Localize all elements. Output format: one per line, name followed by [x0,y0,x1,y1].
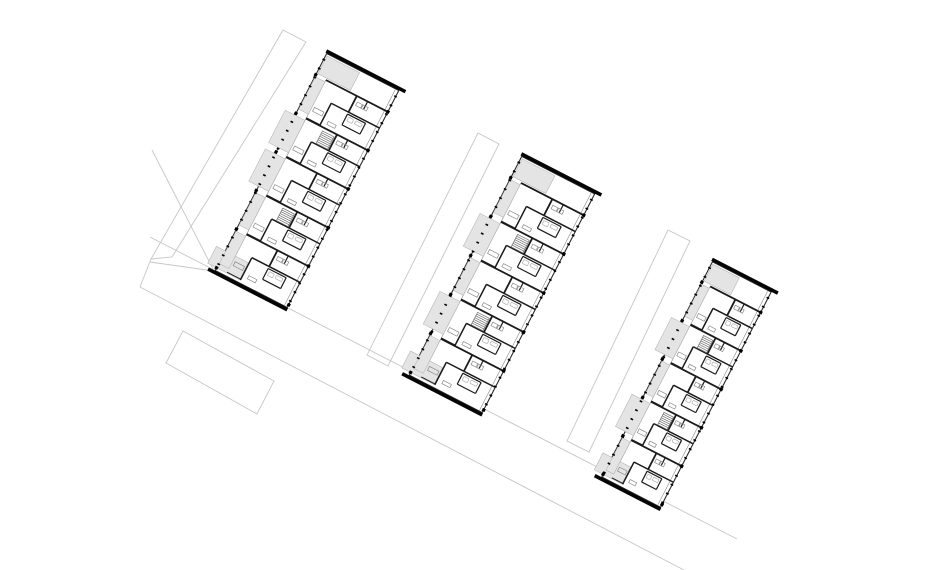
site-boundary-b1 [152,150,214,271]
site-plan-canvas [0,0,940,570]
site-boundary-a-ext [140,259,151,287]
site-boundary-cross [150,262,214,271]
building-2 [398,148,602,419]
site-boundary-u2 [140,287,684,570]
building-1 [204,45,407,314]
building-3 [590,253,778,513]
floor-plan-drawing [0,0,940,570]
site-parcel-rect [166,331,274,414]
